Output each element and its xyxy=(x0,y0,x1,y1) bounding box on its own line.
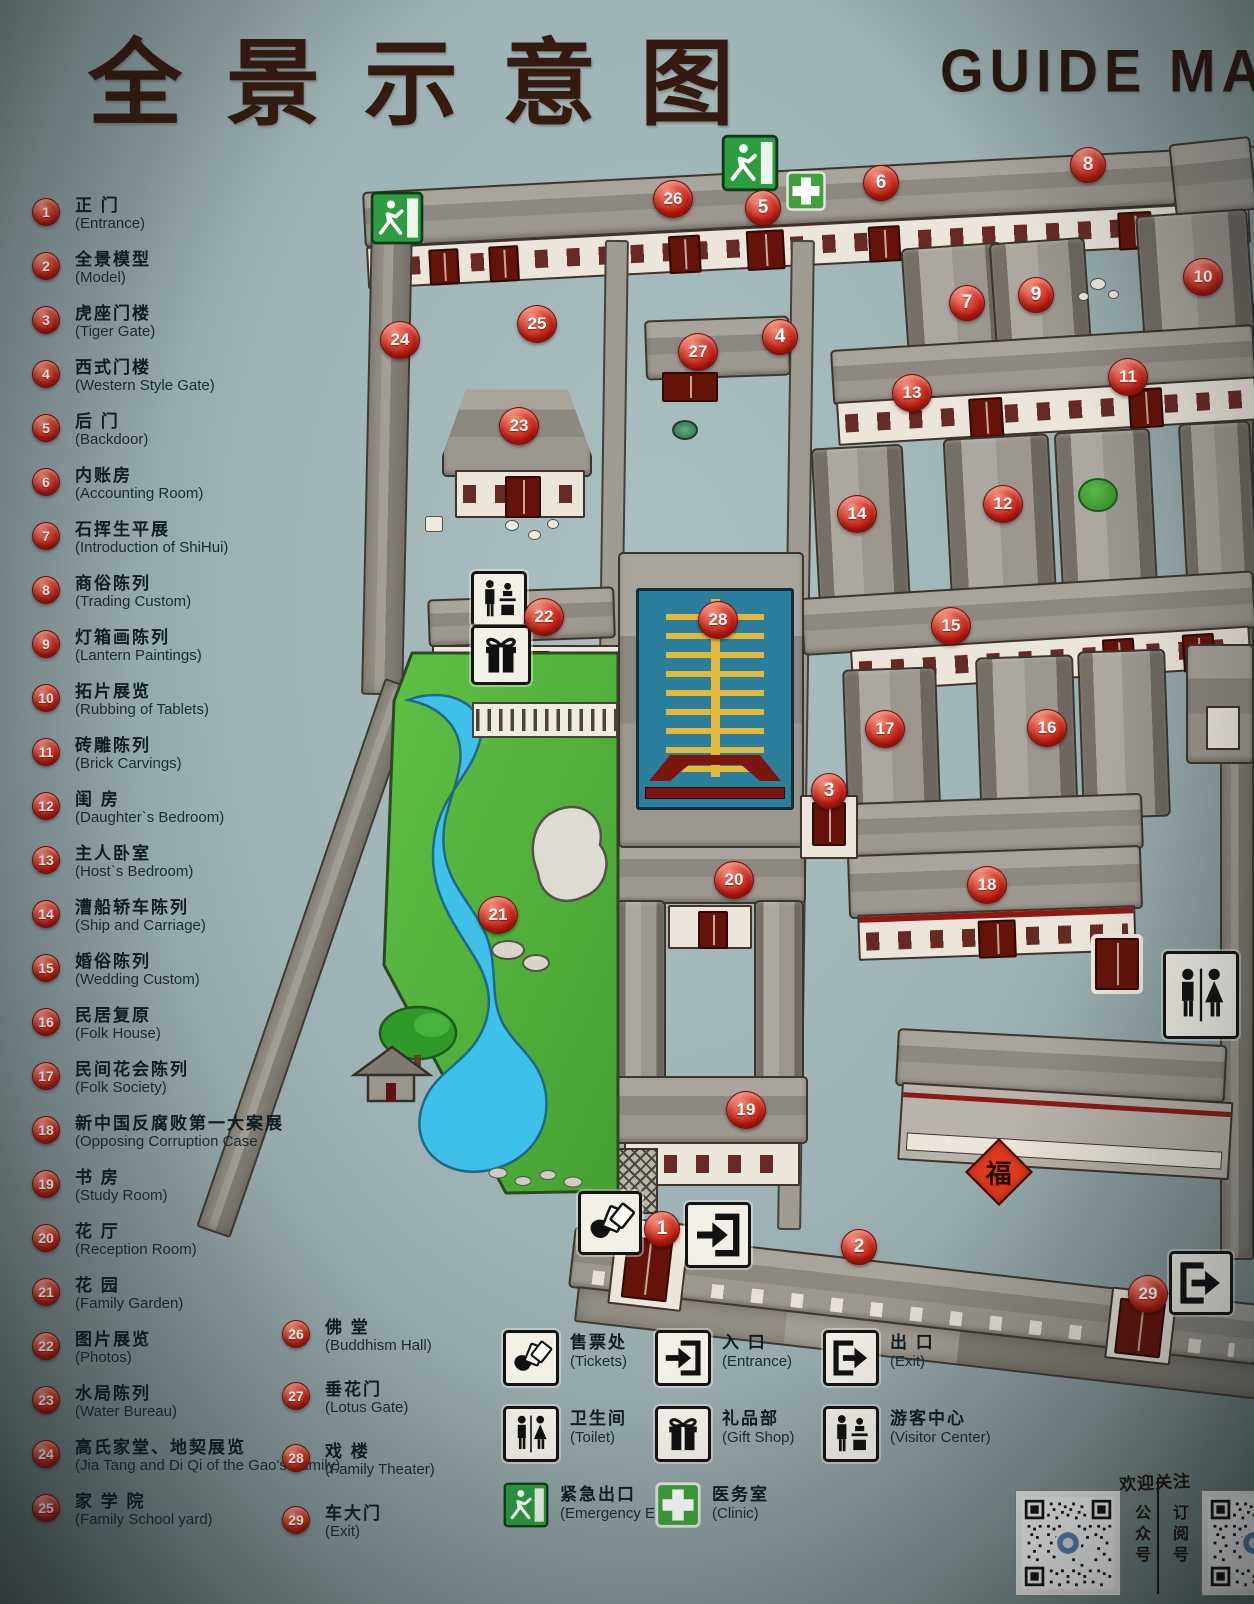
legend-item-19: 19 书 房 (Study Room) xyxy=(32,1168,300,1206)
facility-label-english: (Toilet) xyxy=(570,1429,627,1446)
legend-label-chinese: 车大门 xyxy=(325,1504,382,1523)
courtyard-tree xyxy=(1078,478,1118,512)
toilet-map-icon xyxy=(1163,951,1239,1039)
hall-east-edge xyxy=(1178,420,1254,582)
legend-label-chinese: 水局陈列 xyxy=(75,1384,177,1403)
legend-number-badge: 18 xyxy=(32,1116,60,1144)
legend-label-english: (Water Bureau) xyxy=(75,1403,177,1421)
map-marker-7: 7 xyxy=(949,285,985,321)
emergency-exit-map-icon xyxy=(721,134,779,192)
legend-number-badge: 19 xyxy=(32,1170,60,1198)
clinic-map-icon xyxy=(786,171,826,211)
west-wall xyxy=(361,230,413,696)
facility-clinic: 医务室 (Clinic) xyxy=(655,1482,823,1558)
map-marker-16: 16 xyxy=(1027,709,1067,747)
map-marker-25: 25 xyxy=(517,305,557,343)
legend-number-badge: 16 xyxy=(32,1008,60,1036)
legend-number-badge: 25 xyxy=(32,1494,60,1522)
legend-label-chinese: 图片展览 xyxy=(75,1330,151,1349)
study-room-roof xyxy=(612,1076,808,1144)
legend-label-chinese: 主人卧室 xyxy=(75,844,193,863)
legend-item-1: 1 正 门 (Entrance) xyxy=(32,196,300,234)
map-marker-27: 27 xyxy=(678,333,718,371)
facility-entrance: 入 口 (Entrance) xyxy=(655,1330,823,1406)
qr-right-label: 订阅号 xyxy=(1167,1504,1191,1567)
legend-label-english: (Model) xyxy=(75,269,151,287)
facility-gift-shop: 礼品部 (Gift Shop) xyxy=(655,1406,823,1482)
facility-label-chinese: 礼品部 xyxy=(722,1410,795,1429)
legend-label-chinese: 花 园 xyxy=(75,1276,183,1295)
map-structure xyxy=(1090,278,1106,290)
legend-label-english: (Family Garden) xyxy=(75,1295,183,1313)
legend-number-badge: 3 xyxy=(32,306,60,334)
inner-court-facade xyxy=(668,905,752,949)
legend-item-9: 9 灯箱画陈列 (Lantern Paintings) xyxy=(32,628,300,666)
legend-label-chinese: 婚俗陈列 xyxy=(75,952,200,971)
reception-room-roof xyxy=(614,840,806,904)
lotus-gate-door xyxy=(662,372,718,402)
legend-number-badge: 5 xyxy=(32,414,60,442)
legend-label-chinese: 书 房 xyxy=(75,1168,168,1187)
legend-label-chinese: 民居复原 xyxy=(75,1006,161,1025)
map-marker-26: 26 xyxy=(653,180,693,218)
map-marker-15: 15 xyxy=(931,607,971,645)
legend-label-chinese: 闺 房 xyxy=(75,790,224,809)
legend-number-badge: 7 xyxy=(32,522,60,550)
clinic-icon xyxy=(655,1482,701,1528)
toilet-icon xyxy=(503,1406,559,1462)
map-marker-21: 21 xyxy=(478,896,518,934)
legend-item-27: 27 垂花门 (Lotus Gate) xyxy=(282,1380,502,1418)
legend-number-badge: 24 xyxy=(32,1440,60,1468)
legend-item-10: 10 拓片展览 (Rubbing of Tablets) xyxy=(32,682,300,720)
legend-item-28: 28 戏 楼 (Family Theater) xyxy=(282,1442,502,1480)
legend-label-english: (Backdoor) xyxy=(75,431,148,449)
legend-number-badge: 20 xyxy=(32,1224,60,1252)
map-marker-17: 17 xyxy=(865,710,905,748)
legend-label-chinese: 漕船轿车陈列 xyxy=(75,898,206,917)
map-marker-12: 12 xyxy=(983,485,1023,523)
map-marker-28: 28 xyxy=(698,601,738,639)
legend-label-chinese: 花 厅 xyxy=(75,1222,197,1241)
legend-label-english: (Lotus Gate) xyxy=(325,1399,408,1417)
map-marker-4: 4 xyxy=(762,319,798,355)
legend-label-chinese: 家 学 院 xyxy=(75,1492,213,1511)
tickets-map-icon xyxy=(578,1191,642,1255)
legend-label-english: (Daughter`s Bedroom) xyxy=(75,809,224,827)
legend-label-english: (Exit) xyxy=(325,1523,382,1541)
map-marker-14: 14 xyxy=(837,495,877,533)
legend-label-chinese: 后 门 xyxy=(75,412,148,431)
qr-left-label: 公众号 xyxy=(1129,1504,1153,1567)
legend-item-16: 16 民居复原 (Folk House) xyxy=(32,1006,300,1044)
legend-label-english: (Tiger Gate) xyxy=(75,323,155,341)
legend-number-badge: 4 xyxy=(32,360,60,388)
emergency-exit-icon xyxy=(503,1482,549,1528)
legend-number-badge: 15 xyxy=(32,954,60,982)
legend-label-english: (Buddhism Hall) xyxy=(325,1337,432,1355)
legend-label-english: (Folk Society) xyxy=(75,1079,189,1097)
map-structure xyxy=(528,530,541,540)
guide-map-poster: 全景示意图 GUIDE MAP 1 正 门 (Entrance) 2 全景模型 … xyxy=(0,0,1254,1604)
facility-exit: 出 口 (Exit) xyxy=(823,1330,991,1406)
legend-label-english: (Western Style Gate) xyxy=(75,377,215,395)
legend-label-english: (Brick Carvings) xyxy=(75,755,182,773)
qr-caption: 欢迎关注 xyxy=(1118,1466,1209,1496)
legend-label-english: (Folk House) xyxy=(75,1025,161,1043)
facility-label-chinese: 医务室 xyxy=(712,1486,769,1505)
legend-number-badge: 1 xyxy=(32,198,60,226)
legend-item-14: 14 漕船轿车陈列 (Ship and Carriage) xyxy=(32,898,300,936)
facility-tickets: 售票处 (Tickets) xyxy=(503,1330,655,1406)
facility-emergency-exit: 紧急出口 (Emergency Exit) xyxy=(503,1482,655,1558)
legend-label-english: (Family School yard) xyxy=(75,1511,213,1529)
legend-item-4: 4 西式门楼 (Western Style Gate) xyxy=(32,358,300,396)
legend-number-badge: 21 xyxy=(32,1278,60,1306)
legend-label-chinese: 内账房 xyxy=(75,466,203,485)
legend-column-2: 26 佛 堂 (Buddhism Hall) 27 垂花门 (Lotus Gat… xyxy=(282,1318,502,1542)
facility-label-english: (Entrance) xyxy=(722,1353,792,1370)
map-marker-2: 2 xyxy=(841,1229,877,1265)
map-marker-9: 9 xyxy=(1018,277,1054,313)
map-marker-18: 18 xyxy=(967,866,1007,904)
legend-label-chinese: 虎座门楼 xyxy=(75,304,155,323)
legend-item-7: 7 石挥生平展 (Introduction of ShiHui) xyxy=(32,520,300,558)
facility-visitor-center: 游客中心 (Visitor Center) xyxy=(823,1406,991,1482)
legend-item-25: 25 家 学 院 (Family School yard) xyxy=(32,1492,300,1530)
legend-number-badge: 14 xyxy=(32,900,60,928)
legend-number-badge: 6 xyxy=(32,468,60,496)
legend-item-21: 21 花 园 (Family Garden) xyxy=(32,1276,300,1314)
legend-column-1: 1 正 门 (Entrance) 2 全景模型 (Model) 3 虎座门楼 (… xyxy=(32,196,300,1530)
facility-label-chinese: 卫生间 xyxy=(570,1410,627,1429)
legend-item-17: 17 民间花会陈列 (Folk Society) xyxy=(32,1060,300,1098)
emergency-exit-map-icon xyxy=(370,191,424,245)
legend-number-badge: 13 xyxy=(32,846,60,874)
legend-item-23: 23 水局陈列 (Water Bureau) xyxy=(32,1384,300,1422)
legend-label-english: (Host`s Bedroom) xyxy=(75,863,193,881)
legend-label-chinese: 砖雕陈列 xyxy=(75,736,182,755)
legend-label-english: (Family Theater) xyxy=(325,1461,435,1479)
legend-item-6: 6 内账房 (Accounting Room) xyxy=(32,466,300,504)
study-wing-east xyxy=(754,900,804,1082)
entrance-map-icon xyxy=(685,1202,751,1268)
legend-label-chinese: 商俗陈列 xyxy=(75,574,191,593)
legend-label-english: (Opposing Corruption Case xyxy=(75,1133,284,1151)
facilities-legend: 售票处 (Tickets) 入 口 (Entrance) 出 口 (Exit) … xyxy=(503,1330,989,1558)
legend-label-chinese: 民间花会陈列 xyxy=(75,1060,189,1079)
legend-number-badge: 26 xyxy=(282,1320,310,1348)
facility-label-chinese: 售票处 xyxy=(570,1334,627,1353)
legend-label-chinese: 戏 楼 xyxy=(325,1442,435,1461)
map-marker-11: 11 xyxy=(1108,358,1148,396)
exit-icon xyxy=(823,1330,879,1386)
legend-number-badge: 8 xyxy=(32,576,60,604)
facility-label-english: (Clinic) xyxy=(712,1505,769,1522)
legend-label-chinese: 垂花门 xyxy=(325,1380,408,1399)
map-marker-6: 6 xyxy=(863,165,899,201)
legend-number-badge: 10 xyxy=(32,684,60,712)
qr-divider xyxy=(1157,1478,1159,1594)
map-marker-13: 13 xyxy=(892,374,932,412)
map-structure xyxy=(1078,292,1089,301)
gift-shop-icon xyxy=(655,1406,711,1462)
legend-item-8: 8 商俗陈列 (Trading Custom) xyxy=(32,574,300,612)
east-gatehouse xyxy=(1186,644,1254,764)
legend-label-chinese: 拓片展览 xyxy=(75,682,209,701)
hall-east-1 xyxy=(1054,428,1159,599)
facility-label-chinese: 入 口 xyxy=(722,1334,792,1353)
legend-number-badge: 22 xyxy=(32,1332,60,1360)
legend-label-english: (Introduction of ShiHui) xyxy=(75,539,228,557)
legend-number-badge: 12 xyxy=(32,792,60,820)
legend-item-15: 15 婚俗陈列 (Wedding Custom) xyxy=(32,952,300,990)
facility-label-chinese: 游客中心 xyxy=(890,1410,991,1429)
bronze-urn xyxy=(672,420,698,440)
water-bureau-facade xyxy=(455,470,585,518)
legend-item-2: 2 全景模型 (Model) xyxy=(32,250,300,288)
qr-code-subscription-account xyxy=(1201,1490,1254,1596)
legend-number-badge: 9 xyxy=(32,630,60,658)
legend-label-english: (Reception Room) xyxy=(75,1241,197,1259)
legend-label-english: (Rubbing of Tablets) xyxy=(75,701,209,719)
legend-label-chinese: 西式门楼 xyxy=(75,358,215,377)
legend-item-3: 3 虎座门楼 (Tiger Gate) xyxy=(32,304,300,342)
legend-number-badge: 17 xyxy=(32,1062,60,1090)
east-courtyard-gate xyxy=(1095,938,1139,990)
legend-item-12: 12 闺 房 (Daughter`s Bedroom) xyxy=(32,790,300,828)
map-structure xyxy=(505,520,519,531)
legend-label-chinese: 灯箱画陈列 xyxy=(75,628,202,647)
legend-label-chinese: 正 门 xyxy=(75,196,145,215)
legend-item-5: 5 后 门 (Backdoor) xyxy=(32,412,300,450)
entrance-icon xyxy=(655,1330,711,1386)
legend-item-26: 26 佛 堂 (Buddhism Hall) xyxy=(282,1318,502,1356)
legend-label-english: (Photos) xyxy=(75,1349,151,1367)
legend-number-badge: 27 xyxy=(282,1382,310,1410)
legend-label-chinese: 新中国反腐败第一大案展 xyxy=(75,1114,284,1133)
page-title-english: GUIDE MAP xyxy=(940,35,1254,105)
facility-label-english: (Tickets) xyxy=(570,1353,627,1370)
legend-label-english: (Lantern Paintings) xyxy=(75,647,202,665)
visitor-center-map-icon xyxy=(471,571,527,627)
map-marker-10: 10 xyxy=(1183,258,1223,296)
map-marker-8: 8 xyxy=(1070,147,1106,183)
legend-number-badge: 28 xyxy=(282,1444,310,1472)
legend-label-english: (Wedding Custom) xyxy=(75,971,200,989)
map-marker-23: 23 xyxy=(499,407,539,445)
facility-label-english: (Gift Shop) xyxy=(722,1429,795,1446)
northeast-corner xyxy=(1168,136,1254,218)
map-structure xyxy=(1108,290,1119,299)
gift-shop-map-icon xyxy=(471,625,531,685)
map-marker-5: 5 xyxy=(745,190,781,226)
facility-label-english: (Exit) xyxy=(890,1353,935,1370)
map-marker-1: 1 xyxy=(644,1211,680,1247)
qr-code-public-account xyxy=(1015,1490,1121,1596)
map-marker-22: 22 xyxy=(524,598,564,636)
legend-item-13: 13 主人卧室 (Host`s Bedroom) xyxy=(32,844,300,882)
map-structure xyxy=(547,519,559,529)
map-structure xyxy=(425,516,443,532)
facility-label-chinese: 出 口 xyxy=(890,1334,935,1353)
legend-item-20: 20 花 厅 (Reception Room) xyxy=(32,1222,300,1260)
map-marker-20: 20 xyxy=(714,861,754,899)
page-title-chinese: 全景示意图 xyxy=(88,8,888,128)
legend-number-badge: 11 xyxy=(32,738,60,766)
map-marker-24: 24 xyxy=(380,321,420,359)
legend-item-29: 29 车大门 (Exit) xyxy=(282,1504,502,1542)
legend-item-24: 24 高氏家堂、地契展览 (Jia Tang and Di Qi of the … xyxy=(32,1438,300,1476)
legend-number-badge: 29 xyxy=(282,1506,310,1534)
legend-label-english: (Accounting Room) xyxy=(75,485,203,503)
legend-label-english: (Ship and Carriage) xyxy=(75,917,206,935)
legend-item-22: 22 图片展览 (Photos) xyxy=(32,1330,300,1368)
legend-label-chinese: 佛 堂 xyxy=(325,1318,432,1337)
facility-label-english: (Visitor Center) xyxy=(890,1429,991,1446)
legend-label-english: (Entrance) xyxy=(75,215,145,233)
legend-label-chinese: 全景模型 xyxy=(75,250,151,269)
map-marker-3: 3 xyxy=(811,773,847,809)
legend-item-11: 11 砖雕陈列 (Brick Carvings) xyxy=(32,736,300,774)
visitor-center-icon xyxy=(823,1406,879,1462)
map-marker-19: 19 xyxy=(726,1091,766,1129)
legend-number-badge: 23 xyxy=(32,1386,60,1414)
qr-block: 欢迎关注 公众号 订阅号 xyxy=(995,1462,1254,1604)
family-theater xyxy=(618,552,804,848)
map-marker-29: 29 xyxy=(1128,1275,1168,1313)
legend-item-18: 18 新中国反腐败第一大案展 (Opposing Corruption Case xyxy=(32,1114,300,1152)
legend-label-chinese: 石挥生平展 xyxy=(75,520,228,539)
facility-toilet: 卫生间 (Toilet) xyxy=(503,1406,655,1482)
legend-label-english: (Study Room) xyxy=(75,1187,168,1205)
tickets-icon xyxy=(503,1330,559,1386)
exit-map-icon xyxy=(1169,1251,1233,1315)
legend-label-english: (Trading Custom) xyxy=(75,593,191,611)
legend-number-badge: 2 xyxy=(32,252,60,280)
